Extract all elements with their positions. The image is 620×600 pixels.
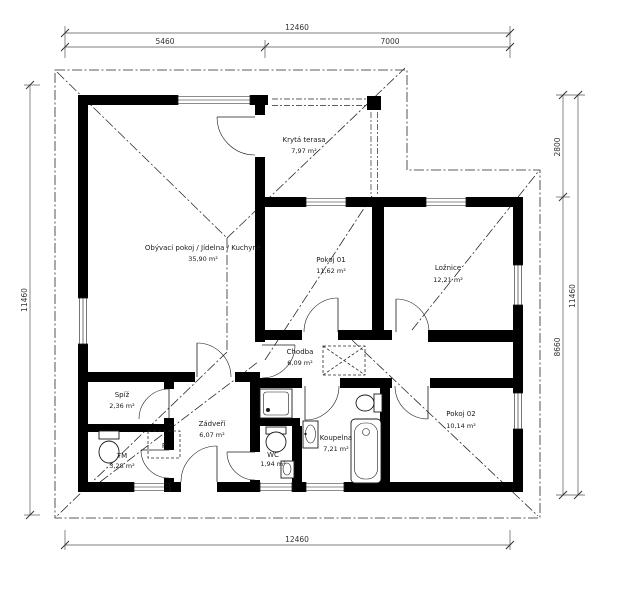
dimension-lines-bottom: 12460 [61, 530, 514, 550]
window-left-living [78, 298, 88, 344]
terrace-edge [272, 99, 378, 196]
svg-text:Pokoj 01: Pokoj 01 [316, 256, 345, 264]
toilet-icon-koupelna [356, 394, 382, 412]
svg-text:6,07 m²: 6,07 m² [199, 431, 225, 439]
window-pokoj02-east [513, 393, 523, 429]
svg-text:7,97 m²: 7,97 m² [291, 147, 317, 155]
dimension-lines-left: 11460 [20, 81, 40, 519]
svg-text:WC: WC [267, 451, 279, 459]
svg-text:6,09 m²: 6,09 m² [287, 359, 313, 367]
svg-text:7,21 m²: 7,21 m² [323, 445, 349, 453]
window-loznice-north [426, 197, 466, 207]
dim-top-total: 12460 [285, 23, 309, 32]
door-pokoj01 [304, 298, 338, 332]
fixtures: P [99, 346, 382, 483]
toilet-icon-wc [266, 427, 286, 452]
svg-text:Zádveří: Zádveří [199, 420, 227, 428]
room-label-loznice: Ložnice 12,21 m² [433, 264, 463, 284]
window-living-north [178, 95, 250, 105]
svg-text:TM: TM [116, 452, 127, 460]
svg-text:Spíž: Spíž [115, 391, 130, 399]
bathtub-icon [351, 419, 381, 483]
door-pokoj02 [395, 386, 428, 419]
svg-text:Koupelna: Koupelna [320, 434, 352, 442]
door-tm [141, 450, 169, 478]
dim-top-left: 5460 [155, 37, 174, 46]
svg-text:2,36 m²: 2,36 m² [109, 402, 135, 410]
svg-text:Chodba: Chodba [287, 348, 314, 356]
room-label-koupelna: Koupelna 7,21 m² [320, 434, 352, 453]
room-label-living: Obývací pokoj / Jídelna / Kuchyně 35,90 … [145, 244, 261, 263]
dim-right-lower: 8660 [553, 337, 562, 356]
room-label-spiz: Spíž 2,36 m² [109, 391, 135, 410]
dimension-lines-top: 12460 5460 7000 [61, 23, 514, 58]
svg-text:Krytá terasa: Krytá terasa [282, 136, 325, 144]
window-loznice-east [513, 265, 523, 305]
svg-text:10,14 m²: 10,14 m² [446, 422, 476, 430]
svg-text:1,94 m²: 1,94 m² [260, 460, 286, 468]
window-pokoj01-north [306, 197, 346, 207]
room-label-chodba: Chodba 6,09 m² [287, 348, 314, 367]
window-tm-south [134, 482, 170, 492]
washbasin-icon-koupelna [303, 421, 318, 448]
svg-text:Obývací pokoj / Jídelna / Kuch: Obývací pokoj / Jídelna / Kuchyně [145, 244, 261, 252]
window-wc-south [260, 482, 292, 492]
room-label-pokoj02: Pokoj 02 10,14 m² [446, 410, 476, 430]
attic-hatch [323, 346, 365, 375]
svg-text:Pokoj 02: Pokoj 02 [446, 410, 475, 418]
floor-plan-drawing: 12460 5460 7000 11460 2800 8660 11460 [0, 0, 620, 600]
dimension-lines-right: 2800 8660 11460 [553, 91, 585, 499]
svg-text:11,62 m²: 11,62 m² [316, 267, 346, 275]
door-koupelna [305, 386, 339, 420]
room-label-pokoj01: Pokoj 01 11,62 m² [316, 256, 346, 275]
dim-right-total: 11460 [568, 284, 577, 308]
door-zadveri-living [197, 343, 231, 377]
floor-plan-page: 12460 5460 7000 11460 2800 8660 11460 [0, 0, 620, 600]
room-label-zadveri: Zádveří 6,07 m² [199, 420, 227, 439]
door-wc [227, 452, 255, 480]
window-koupelna-south [306, 482, 344, 492]
dim-bottom-total: 12460 [285, 535, 309, 544]
svg-text:3,28 m²: 3,28 m² [109, 462, 135, 470]
dim-right-upper: 2800 [553, 137, 562, 156]
svg-text:Ložnice: Ložnice [435, 264, 461, 272]
svg-text:35,90 m²: 35,90 m² [188, 255, 218, 263]
room-label-terasa: Krytá terasa 7,97 m² [282, 136, 325, 155]
svg-text:12,21 m²: 12,21 m² [433, 276, 463, 284]
shower-icon [260, 389, 292, 418]
door-terrace-living [217, 117, 255, 155]
terrace-post [367, 96, 381, 110]
door-spiz [139, 389, 169, 419]
washing-machine-label: P [162, 442, 166, 450]
door-main-entrance [181, 446, 217, 482]
dim-top-right: 7000 [380, 37, 399, 46]
dim-left-total: 11460 [20, 288, 29, 312]
room-label-wc: WC 1,94 m² [260, 451, 286, 468]
